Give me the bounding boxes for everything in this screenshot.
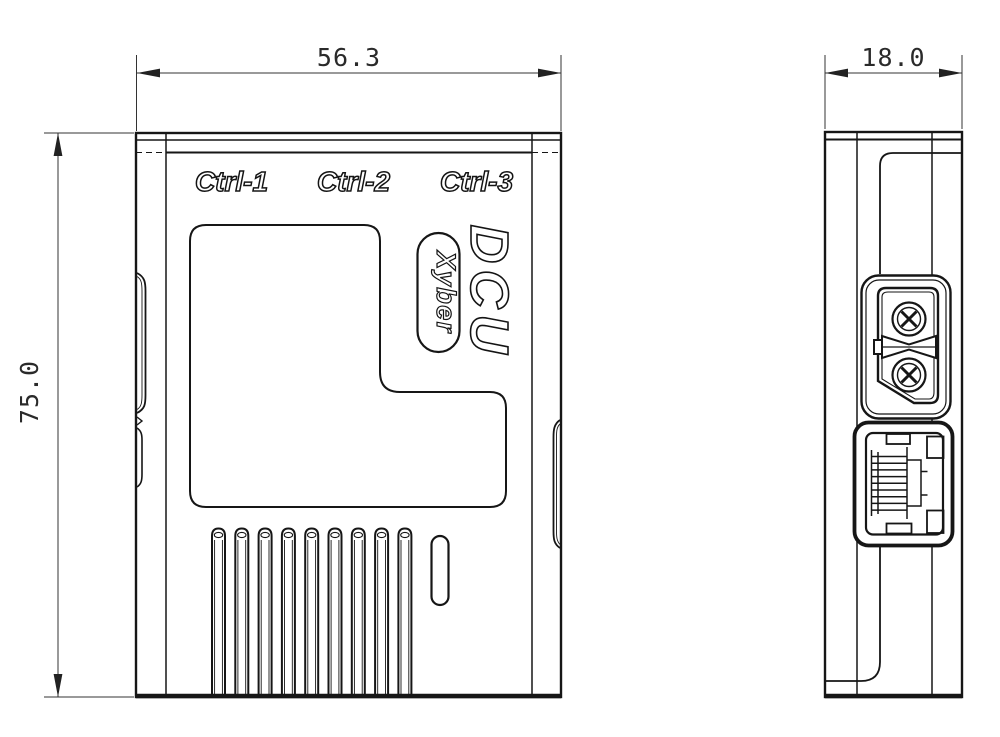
small-oval-slot [432, 536, 449, 605]
power-pin-bottom [893, 359, 926, 392]
connector-key-tab [874, 340, 882, 354]
power-connector [862, 276, 951, 419]
height-dimension: 75.0 [15, 133, 134, 697]
vent-slot-inner-line [308, 540, 316, 696]
side-cover-seam-lower [825, 545, 880, 681]
vent-slot-inner-line [261, 540, 269, 696]
vent-slot-inner-line [285, 540, 293, 696]
vent-slot-inner-line [354, 540, 362, 696]
depth-dimension: 18.0 [825, 43, 962, 129]
technical-drawing: 56.3 75.0 Ctrl-1 Ctrl-2 Ctrl-3 [0, 0, 1000, 737]
vent-slot-cap-ellipse [354, 532, 362, 537]
width-dimension: 56.3 [137, 43, 562, 131]
vent-slot-inner-line [378, 540, 386, 696]
vent-slot-cap-ellipse [284, 532, 292, 537]
vent-slot [235, 529, 248, 696]
vent-slot [282, 529, 295, 696]
ctrl-1-label: Ctrl-1 [195, 166, 268, 197]
vent-slot-inner-line [401, 540, 409, 696]
ctrl-2-label: Ctrl-2 [317, 166, 391, 197]
left-clip-tab-upper-inner [137, 277, 142, 410]
vent-slot [398, 529, 411, 696]
vent-slot [352, 529, 365, 696]
vent-slot [305, 529, 318, 696]
right-clip-tab-inner [557, 424, 561, 545]
front-view: 56.3 75.0 Ctrl-1 Ctrl-2 Ctrl-3 [15, 43, 561, 697]
vent-slot-cap-ellipse [401, 532, 409, 537]
vent-slot-cap-ellipse [377, 532, 385, 537]
left-clip-notch [137, 417, 142, 425]
vent-slot-cap-ellipse [261, 532, 269, 537]
front-body-outline [136, 133, 561, 697]
ctrl-labels: Ctrl-1 Ctrl-2 Ctrl-3 [195, 166, 514, 197]
vent-slot-cap-ellipse [238, 532, 246, 537]
vent-slots [212, 529, 411, 696]
depth-dimension-value: 18.0 [861, 43, 925, 72]
vent-slot [375, 529, 388, 696]
width-dimension-value: 56.3 [317, 43, 381, 72]
side-view: 18.0 [825, 43, 962, 697]
vent-slot-cap-ellipse [214, 532, 222, 537]
vent-slot-cap-ellipse [331, 532, 339, 537]
vent-slot [212, 529, 225, 696]
vent-slot-inner-line [215, 540, 223, 696]
vent-slot-cap-ellipse [308, 532, 316, 537]
vent-slot-inner-line [331, 540, 339, 696]
vent-slot-inner-line [238, 540, 246, 696]
left-clip-tab-lower [137, 428, 142, 487]
vent-slot [329, 529, 342, 696]
vent-slot [259, 529, 272, 696]
brand-logo: Xyber [431, 249, 461, 334]
side-cover-seam-upper [880, 153, 962, 274]
ethernet-port [855, 423, 953, 546]
ctrl-3-label: Ctrl-3 [440, 166, 514, 197]
front-side-wall-lines [166, 133, 532, 697]
product-logo: DCU [459, 225, 519, 360]
power-pin-top [893, 303, 926, 336]
left-clip-tab-upper [137, 273, 146, 413]
height-dimension-value: 75.0 [15, 360, 44, 424]
